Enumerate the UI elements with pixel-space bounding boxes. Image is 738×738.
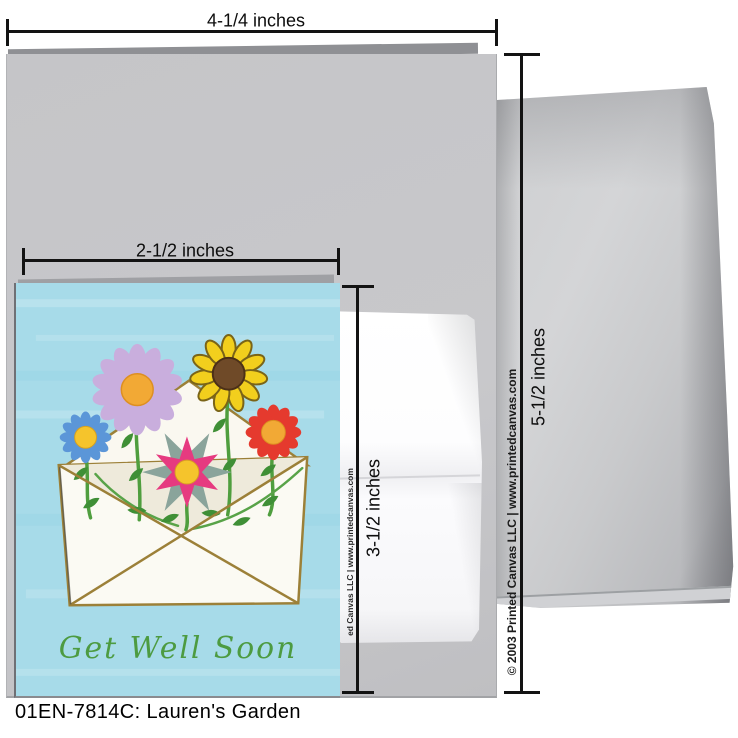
small-envelope-fold-line bbox=[338, 474, 480, 479]
dim-tick bbox=[342, 691, 374, 694]
small-card: Get Well Soon bbox=[14, 283, 340, 698]
dim-label-small-card-width: 2-1/2 inches bbox=[136, 241, 234, 262]
dim-label-small-card-height: 3-1/2 inches bbox=[364, 459, 385, 557]
product-caption: 01EN-7814C: Lauren's Garden bbox=[15, 701, 301, 724]
blue-center bbox=[75, 426, 97, 448]
sunflower-center bbox=[213, 358, 245, 390]
dim-line-small-card-height bbox=[356, 286, 359, 694]
dim-tick bbox=[504, 53, 540, 56]
dim-tick bbox=[504, 691, 540, 694]
small-envelope bbox=[338, 308, 488, 643]
large-envelope-flap-edge bbox=[491, 585, 738, 609]
dim-line-large-card-height bbox=[520, 54, 523, 694]
dim-tick bbox=[342, 285, 374, 288]
dim-tick bbox=[22, 248, 25, 275]
product-diagram: Get Well Soon 4-1/4 inches 2-1/2 inches … bbox=[0, 0, 738, 738]
greeting-text: Get Well Soon bbox=[59, 631, 298, 666]
dim-tick bbox=[495, 19, 498, 46]
large-envelope-right-fold bbox=[680, 87, 738, 608]
dim-tick bbox=[6, 19, 9, 46]
dim-label-large-card-width: 4-1/4 inches bbox=[207, 11, 305, 32]
pink-star-center bbox=[175, 460, 199, 484]
lavender-center bbox=[121, 374, 153, 406]
red-center bbox=[261, 420, 285, 444]
card-artwork: Get Well Soon bbox=[16, 283, 340, 696]
copyright-strip-card: ed Canvas LLC | www.printedcanvas.com bbox=[345, 468, 355, 636]
dim-tick bbox=[337, 248, 340, 275]
copyright-strip-envelope: © 2003 Printed Canvas LLC | www.printedc… bbox=[505, 369, 519, 676]
dim-label-large-card-height: 5-1/2 inches bbox=[529, 328, 550, 426]
